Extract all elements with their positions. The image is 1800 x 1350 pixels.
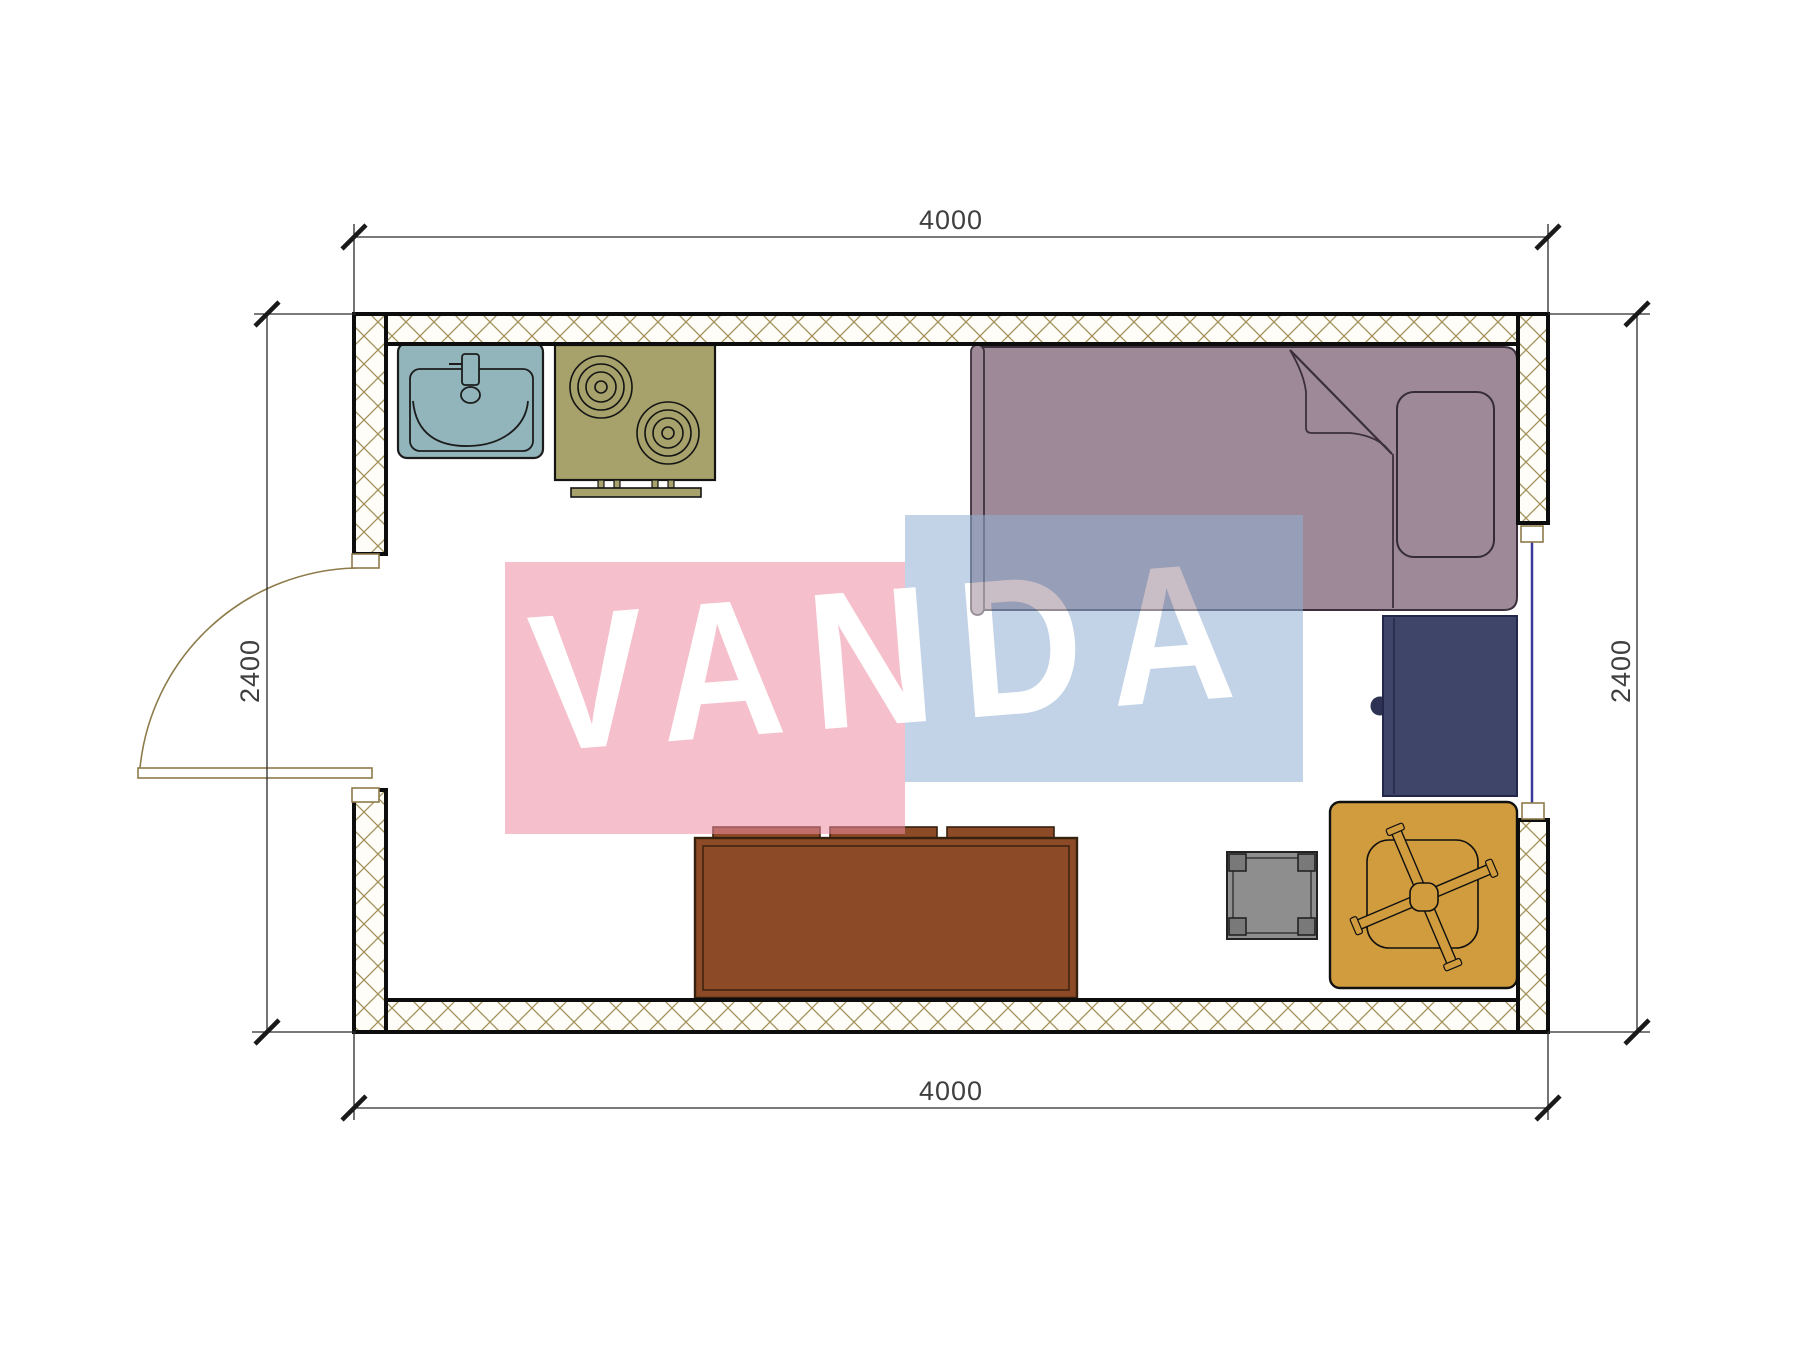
wall-left-upper: [354, 314, 386, 554]
dimension-label-left: 2400: [235, 639, 265, 703]
bed-pillow: [1397, 392, 1494, 557]
dimension-top: 4000: [342, 205, 1560, 313]
dimension-label-right: 2400: [1606, 639, 1636, 703]
stool-icon: [1227, 852, 1317, 939]
window-frame-bottom: [1522, 803, 1544, 819]
chair-with-fan-icon: [1330, 802, 1517, 988]
wall-right-upper: [1518, 314, 1548, 523]
wall-left-lower: [354, 790, 386, 1032]
door-jamb-bottom: [352, 788, 379, 802]
sink-icon: [398, 343, 543, 458]
dimension-label-top: 4000: [919, 205, 983, 235]
sofa-cabinet-icon: [695, 827, 1077, 998]
window-frame-top: [1521, 526, 1543, 542]
dimension-left: 2400: [235, 302, 356, 1044]
door-leaf: [138, 768, 372, 778]
dimension-label-bottom: 4000: [919, 1076, 983, 1106]
dimension-right: 2400: [1548, 302, 1650, 1044]
watermark: VANDA: [505, 515, 1303, 834]
wall-right-lower: [1518, 820, 1548, 1032]
window-icon: [1521, 526, 1544, 819]
fan-hub: [1410, 883, 1438, 911]
wall-top: [354, 314, 1548, 344]
desk-icon: [1371, 616, 1518, 796]
floor-plan-drawing: VANDA: [0, 0, 1800, 1350]
wall-bottom: [354, 1000, 1548, 1032]
floor-plan-canvas: VANDA: [0, 0, 1800, 1350]
door-jamb-top: [352, 554, 379, 568]
stove-icon: [555, 345, 715, 497]
dimension-bottom: 4000: [342, 1032, 1560, 1120]
